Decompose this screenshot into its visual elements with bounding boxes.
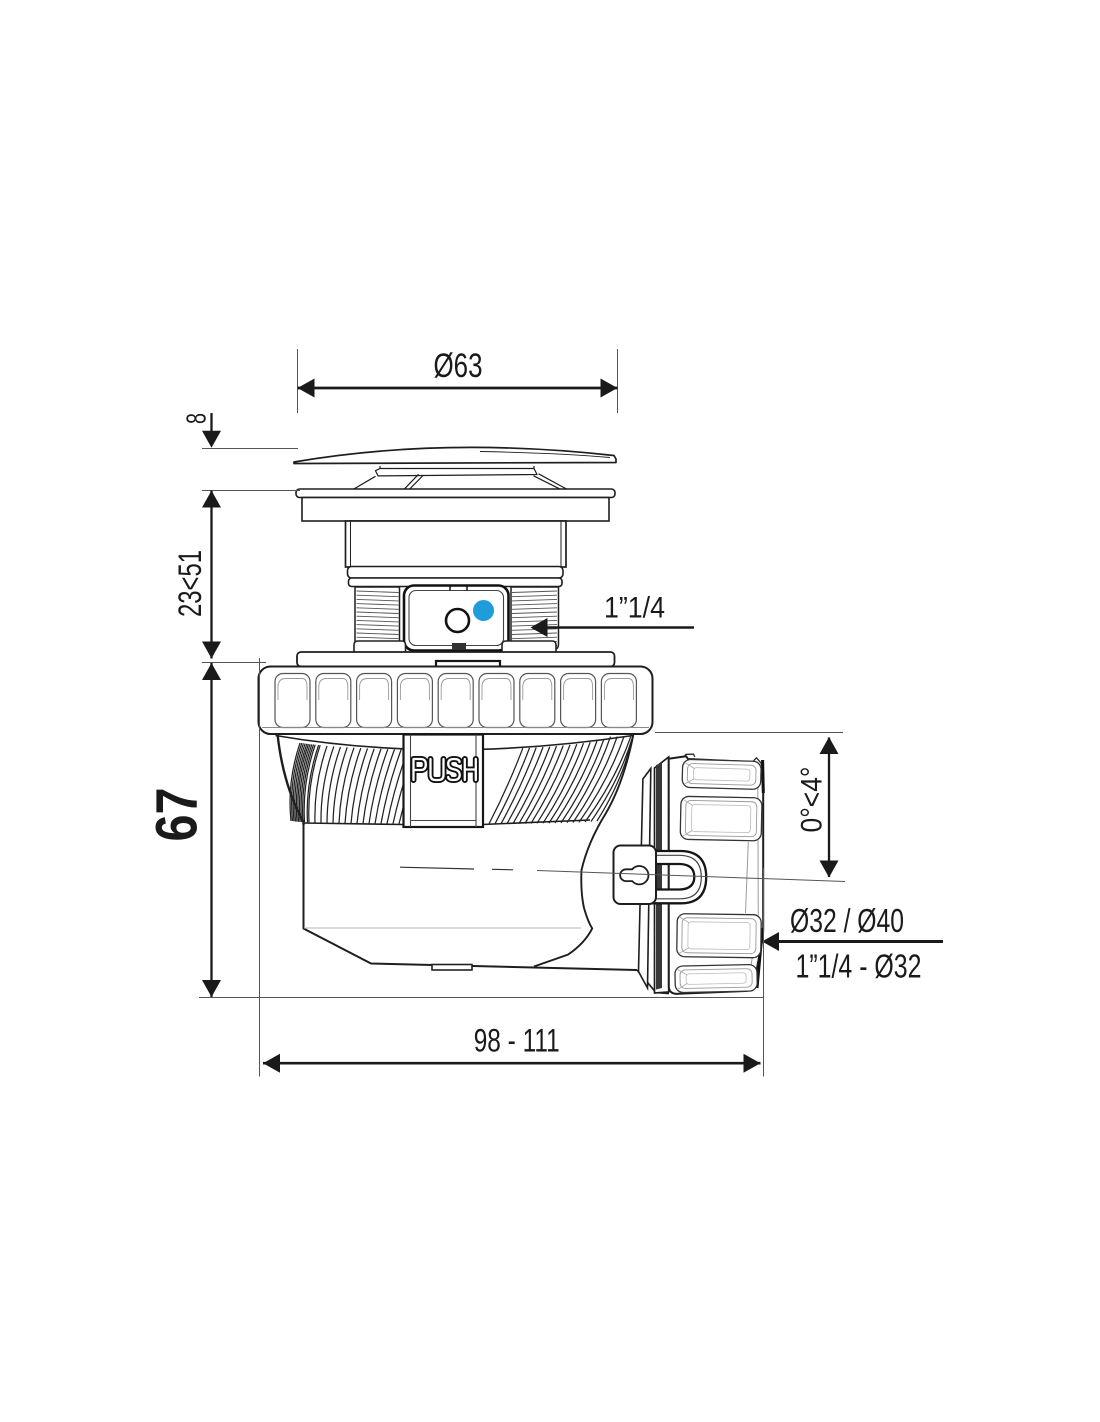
svg-text:Ø63: Ø63	[434, 347, 483, 385]
svg-text:0°<4°: 0°<4°	[796, 767, 829, 833]
svg-text:1”1/4 - Ø32: 1”1/4 - Ø32	[796, 948, 922, 985]
svg-text:98 - 111: 98 - 111	[474, 1023, 560, 1059]
svg-text:8: 8	[181, 413, 212, 424]
svg-text:67: 67	[145, 788, 210, 842]
svg-text:23<51: 23<51	[172, 550, 208, 617]
svg-text:1”1/4: 1”1/4	[604, 592, 665, 625]
svg-text:Ø32 / Ø40: Ø32 / Ø40	[790, 902, 904, 939]
